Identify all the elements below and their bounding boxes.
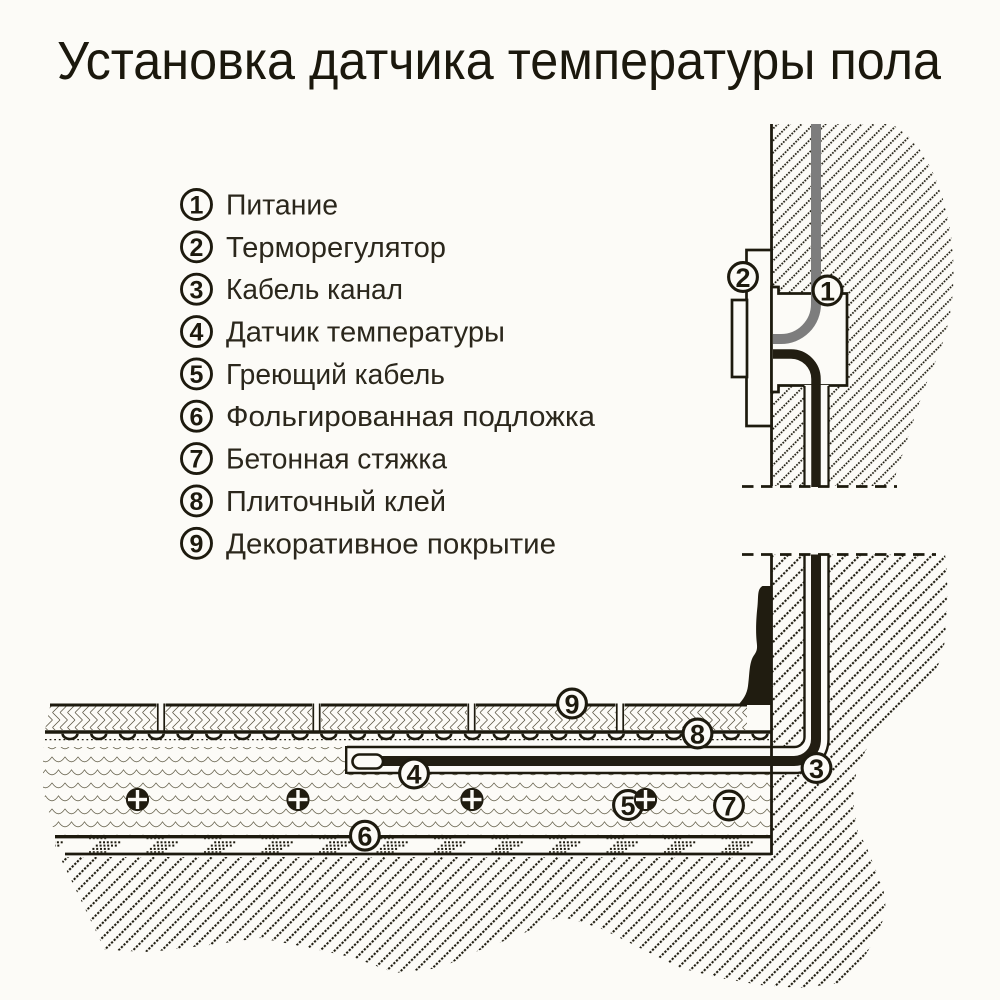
svg-text:6: 6: [190, 403, 204, 431]
svg-text:5: 5: [620, 791, 635, 821]
svg-text:2: 2: [190, 234, 204, 262]
svg-text:7: 7: [721, 791, 736, 821]
svg-text:Бетонная стяжка: Бетонная стяжка: [226, 444, 448, 476]
svg-text:Датчик температуры: Датчик температуры: [226, 317, 505, 349]
svg-text:9: 9: [190, 530, 204, 558]
svg-text:6: 6: [357, 822, 372, 852]
svg-text:1: 1: [190, 192, 204, 220]
svg-text:Греющий кабель: Греющий кабель: [226, 359, 445, 391]
svg-text:8: 8: [190, 488, 204, 516]
svg-text:Декоративное покрытие: Декоративное покрытие: [226, 528, 556, 560]
svg-text:9: 9: [564, 689, 579, 719]
svg-text:Кабель канал: Кабель канал: [226, 274, 403, 306]
svg-text:8: 8: [690, 719, 705, 749]
svg-text:4: 4: [406, 759, 421, 789]
svg-text:Плиточный клей: Плиточный клей: [226, 486, 446, 518]
svg-text:Терморегулятор: Терморегулятор: [226, 232, 446, 264]
svg-text:4: 4: [190, 319, 204, 347]
svg-text:3: 3: [190, 276, 204, 304]
svg-text:2: 2: [735, 263, 750, 293]
svg-text:Установка датчика температуры: Установка датчика температуры пола: [57, 31, 942, 91]
svg-text:Фольгированная подложка: Фольгированная подложка: [226, 401, 596, 433]
svg-text:3: 3: [809, 754, 824, 784]
svg-text:Питание: Питание: [226, 190, 338, 222]
svg-text:1: 1: [820, 276, 835, 306]
svg-text:5: 5: [190, 361, 204, 389]
svg-text:7: 7: [190, 446, 204, 474]
